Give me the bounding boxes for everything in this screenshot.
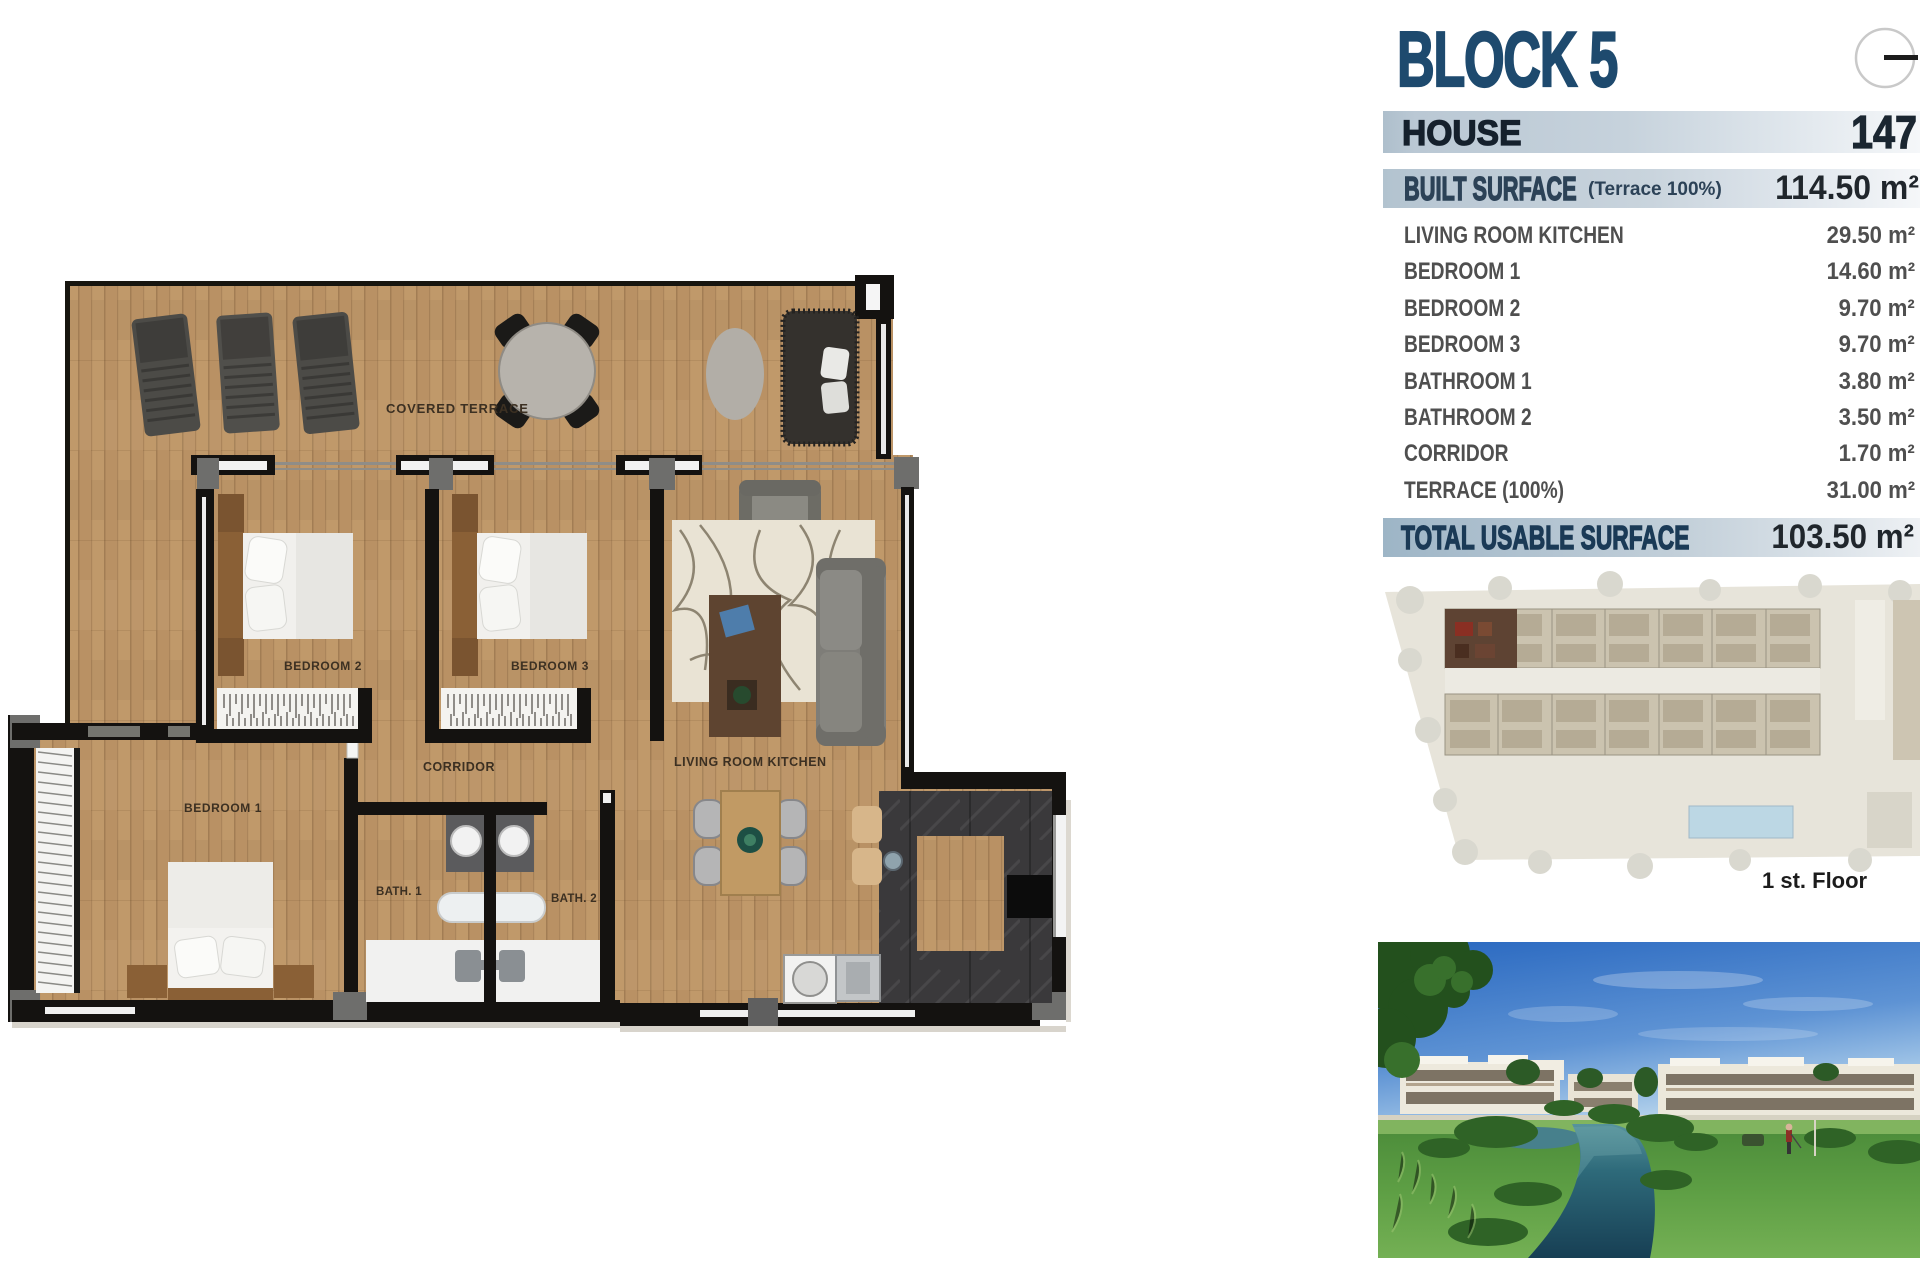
svg-text:1 st. Floor: 1 st. Floor: [1762, 868, 1868, 893]
svg-text:LIVING ROOM KITCHEN: LIVING ROOM KITCHEN: [674, 755, 827, 769]
svg-text:COVERED TERRACE: COVERED TERRACE: [386, 401, 529, 416]
svg-text:BEDROOM 1: BEDROOM 1: [184, 801, 262, 815]
svg-text:BATH. 1: BATH. 1: [376, 886, 422, 898]
svg-text:CORRIDOR: CORRIDOR: [423, 760, 495, 774]
svg-text:BEDROOM 2: BEDROOM 2: [284, 659, 362, 673]
svg-text:BATH. 2: BATH. 2: [551, 893, 597, 905]
svg-text:BEDROOM 3: BEDROOM 3: [511, 659, 589, 673]
